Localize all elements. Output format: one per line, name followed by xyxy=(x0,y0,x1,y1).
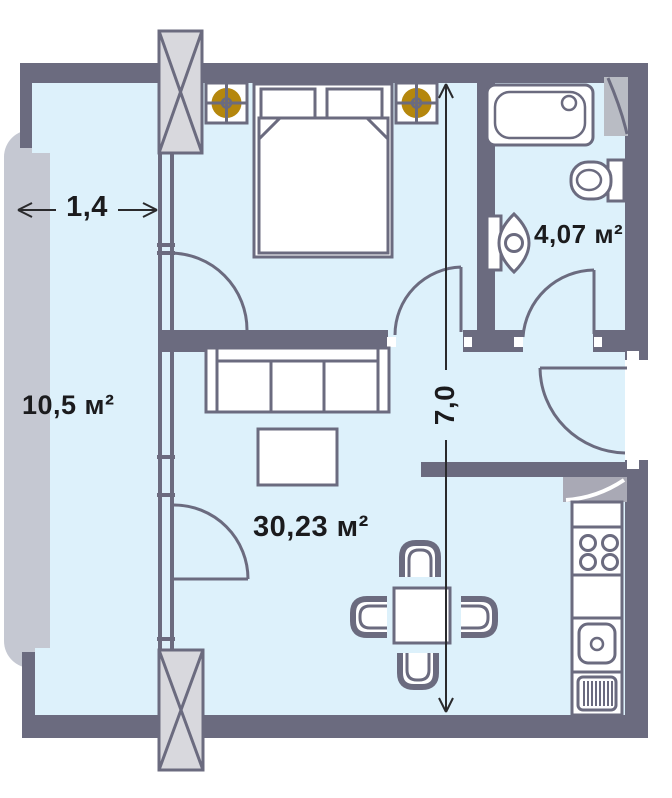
bathtub xyxy=(487,85,593,145)
balcony-area-label: 10,5 м² xyxy=(22,392,115,419)
balcony-width-dimension-label: 1,4 xyxy=(50,193,124,222)
ceiling-vent-symbol-right xyxy=(396,83,437,123)
corner-cabinet xyxy=(563,477,627,502)
living-room-area-label: 30,23 м² xyxy=(253,513,369,542)
apartment-depth-dimension-label: 7,0 xyxy=(431,365,463,445)
bathroom-area-label: 4,07 м² xyxy=(534,221,623,247)
floor-plan: 1,4 10,5 м² 30,23 м² 4,07 м² 7,0 xyxy=(0,0,672,798)
dining-table xyxy=(394,588,450,643)
wash-basin xyxy=(487,214,529,272)
ventilation-shaft-top xyxy=(159,31,202,153)
kitchen-sink xyxy=(579,624,615,663)
ventilation-shaft-bottom xyxy=(159,650,203,770)
chair-right xyxy=(461,599,495,635)
chair-left xyxy=(353,599,387,635)
double-bed xyxy=(254,84,392,257)
coffee-table xyxy=(258,429,337,485)
duct-panel xyxy=(604,77,628,136)
chair-top xyxy=(402,543,438,577)
drainboard xyxy=(578,677,616,710)
kitchen-strip xyxy=(572,502,622,715)
sofa xyxy=(206,348,389,412)
chair-bottom xyxy=(400,653,436,687)
toilet xyxy=(571,160,624,201)
ceiling-vent-symbol-left xyxy=(206,83,247,123)
